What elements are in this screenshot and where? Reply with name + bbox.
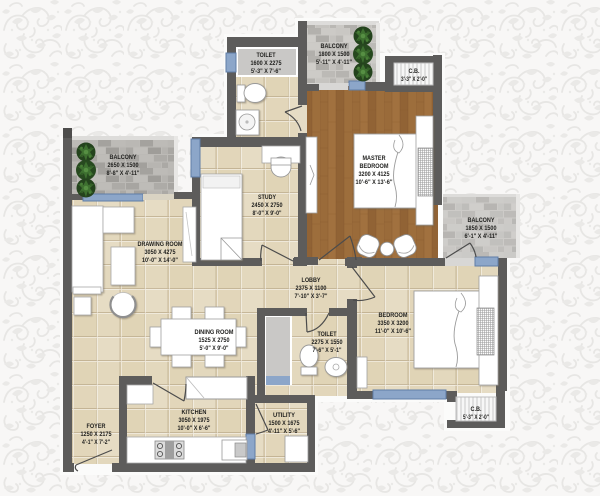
svg-text:TOILET: TOILET xyxy=(257,52,276,59)
svg-text:C.B.: C.B. xyxy=(409,68,420,75)
svg-text:10'-6" X 13'-6": 10'-6" X 13'-6" xyxy=(356,179,393,186)
svg-text:BALCONY: BALCONY xyxy=(468,217,495,224)
svg-text:1600 X 2275: 1600 X 2275 xyxy=(251,60,283,67)
svg-text:8'-8" X 4'-11": 8'-8" X 4'-11" xyxy=(107,170,140,177)
svg-text:DINING ROOM: DINING ROOM xyxy=(195,329,234,336)
svg-text:3050 X 4275: 3050 X 4275 xyxy=(145,249,177,256)
svg-text:BALCONY: BALCONY xyxy=(110,154,137,161)
svg-text:10'-0" X 6'-6": 10'-0" X 6'-6" xyxy=(178,425,211,432)
svg-text:1800 X 1500: 1800 X 1500 xyxy=(319,51,351,58)
svg-text:5'-3" X 7'-6": 5'-3" X 7'-6" xyxy=(251,68,281,75)
svg-text:1850 X 1500: 1850 X 1500 xyxy=(466,225,498,232)
svg-text:4'-11" X 5'-6": 4'-11" X 5'-6" xyxy=(268,428,300,435)
svg-text:C.B.: C.B. xyxy=(471,406,482,413)
svg-text:4'-1" X 7'-2": 4'-1" X 7'-2" xyxy=(82,439,110,446)
svg-text:2375 X 1100: 2375 X 1100 xyxy=(296,285,328,292)
svg-text:BEDROOM: BEDROOM xyxy=(360,163,389,170)
svg-text:11'-0" X 10'-6": 11'-0" X 10'-6" xyxy=(375,328,411,335)
svg-text:3'-3" X 2'-0": 3'-3" X 2'-0" xyxy=(401,76,427,83)
svg-text:5'-0" X 9'-0": 5'-0" X 9'-0" xyxy=(200,345,229,352)
svg-text:3350 X 3200: 3350 X 3200 xyxy=(378,320,410,327)
svg-text:UTILITY: UTILITY xyxy=(273,412,296,419)
svg-text:2450 X 2750: 2450 X 2750 xyxy=(252,202,284,209)
svg-text:8'-0" X 9'-0": 8'-0" X 9'-0" xyxy=(253,210,282,217)
svg-text:7'-10" X 3'-7": 7'-10" X 3'-7" xyxy=(295,293,328,300)
svg-text:1525 X 2750: 1525 X 2750 xyxy=(199,337,231,344)
svg-text:5'-11" X 4'-11": 5'-11" X 4'-11" xyxy=(316,59,352,66)
svg-text:LOBBY: LOBBY xyxy=(302,277,321,284)
svg-text:KITCHEN: KITCHEN xyxy=(182,409,207,416)
svg-text:2275 X 1550: 2275 X 1550 xyxy=(312,339,344,346)
svg-text:TOILET: TOILET xyxy=(318,331,337,338)
svg-text:1250 X 2175: 1250 X 2175 xyxy=(81,431,113,438)
svg-text:1500 X 1675: 1500 X 1675 xyxy=(269,420,301,427)
svg-text:5'-3" X 2'-0": 5'-3" X 2'-0" xyxy=(463,414,489,421)
svg-text:10'-0" X 14'-0": 10'-0" X 14'-0" xyxy=(142,257,178,264)
svg-text:2650 X 1500: 2650 X 1500 xyxy=(108,162,140,169)
svg-text:STUDY: STUDY xyxy=(258,194,276,201)
svg-text:DRAWING ROOM: DRAWING ROOM xyxy=(138,241,183,248)
svg-text:6'-1" X 4'-11": 6'-1" X 4'-11" xyxy=(465,233,498,240)
svg-text:3200 X 4125: 3200 X 4125 xyxy=(359,171,391,178)
svg-text:FOYER: FOYER xyxy=(87,423,106,430)
svg-text:MASTER: MASTER xyxy=(363,155,386,162)
svg-text:BEDROOM: BEDROOM xyxy=(379,312,408,319)
svg-text:7'-6" X 5'-1": 7'-6" X 5'-1" xyxy=(313,347,342,354)
svg-text:BALCONY: BALCONY xyxy=(321,43,348,50)
svg-text:3050 X 1975: 3050 X 1975 xyxy=(179,417,211,424)
